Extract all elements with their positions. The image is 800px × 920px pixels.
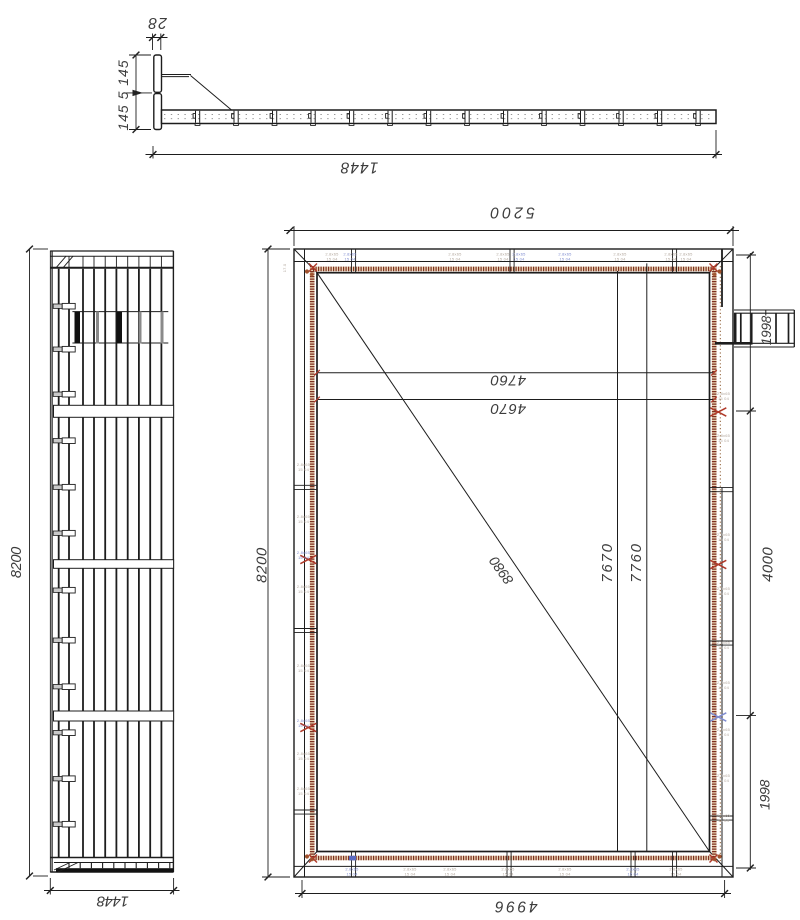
svg-text:8200: 8200 — [254, 547, 271, 583]
svg-text:15 04: 15 04 — [326, 257, 338, 262]
svg-text:15 04: 15 04 — [344, 257, 356, 262]
svg-text:8980: 8980 — [486, 553, 517, 587]
svg-text:15 04: 15 04 — [627, 872, 639, 877]
svg-text:1998: 1998 — [758, 780, 774, 810]
svg-text:15 04: 15 04 — [298, 467, 310, 472]
svg-text:15 04: 15 04 — [718, 685, 730, 690]
svg-text:15 04: 15 04 — [680, 257, 692, 262]
svg-text:15 04: 15 04 — [614, 257, 626, 262]
svg-text:15 04: 15 04 — [670, 872, 682, 877]
svg-text:15 04: 15 04 — [718, 396, 730, 401]
svg-text:15 04: 15 04 — [559, 257, 571, 262]
svg-text:15 04: 15 04 — [404, 872, 416, 877]
svg-text:8200: 8200 — [9, 547, 25, 578]
svg-text:4000: 4000 — [760, 547, 777, 582]
svg-text:1448: 1448 — [96, 892, 129, 909]
svg-text:1998: 1998 — [759, 315, 774, 345]
svg-text:145 5 145: 145 5 145 — [115, 59, 131, 130]
svg-text:15 04: 15 04 — [298, 668, 310, 673]
svg-text:15 04: 15 04 — [449, 257, 461, 262]
svg-text:15 04: 15 04 — [497, 257, 509, 262]
svg-text:15 04: 15 04 — [298, 791, 310, 796]
svg-text:15 04: 15 04 — [559, 872, 571, 877]
svg-text:15 04: 15 04 — [718, 591, 730, 596]
svg-text:15 04: 15 04 — [346, 872, 358, 877]
svg-text:5200: 5200 — [487, 204, 535, 221]
svg-text:1448: 1448 — [340, 159, 378, 176]
svg-text:15 04: 15 04 — [298, 555, 310, 560]
svg-text:4670: 4670 — [490, 400, 526, 417]
svg-text:15 04: 15 04 — [298, 589, 310, 594]
svg-text:15 04: 15 04 — [718, 778, 730, 783]
svg-text:4760: 4760 — [490, 372, 526, 389]
svg-text:15 04: 15 04 — [718, 818, 730, 823]
svg-text:15 04: 15 04 — [513, 257, 525, 262]
svg-text:15 04: 15 04 — [718, 537, 730, 542]
svg-text:15 04: 15 04 — [298, 756, 310, 761]
svg-text:15 04: 15 04 — [718, 732, 730, 737]
svg-text:4996: 4996 — [492, 897, 537, 914]
svg-text:15 04: 15 04 — [718, 645, 730, 650]
svg-text:15 04: 15 04 — [298, 723, 310, 728]
svg-text:15 04: 15 04 — [298, 519, 310, 524]
svg-text:15 04: 15 04 — [444, 872, 456, 877]
svg-text:17.0: 17.0 — [282, 263, 287, 272]
svg-text:15 04: 15 04 — [502, 872, 514, 877]
svg-text:15 04: 15 04 — [665, 257, 677, 262]
svg-text:28: 28 — [147, 14, 168, 31]
svg-text:7760: 7760 — [628, 542, 645, 583]
svg-text:7670: 7670 — [599, 542, 616, 583]
svg-text:15 04: 15 04 — [718, 438, 730, 443]
